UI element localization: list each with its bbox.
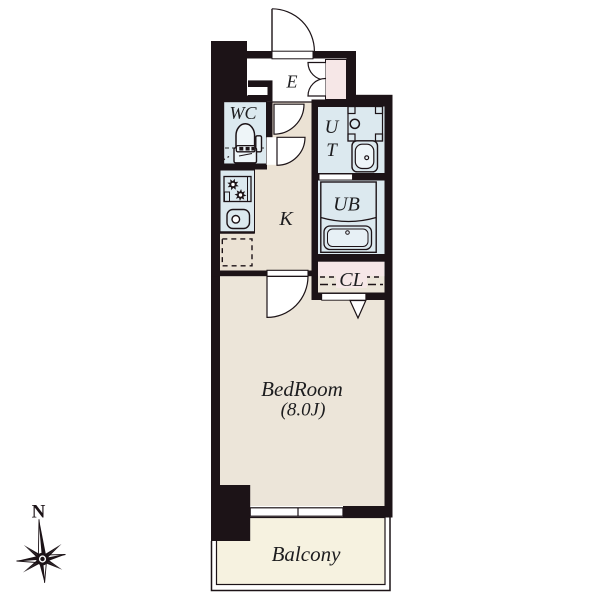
svg-text:CL: CL	[339, 269, 363, 291]
svg-text:(8.0J): (8.0J)	[281, 400, 326, 421]
svg-text:UB: UB	[333, 194, 360, 216]
svg-text:BedRoom: BedRoom	[261, 377, 343, 401]
svg-text:Balcony: Balcony	[272, 542, 341, 566]
svg-text:E: E	[286, 72, 298, 92]
svg-text:WC: WC	[230, 103, 258, 123]
svg-text:T: T	[326, 140, 338, 161]
svg-text:N: N	[32, 502, 46, 523]
svg-text:U: U	[325, 117, 340, 138]
svg-text:K: K	[278, 208, 294, 230]
